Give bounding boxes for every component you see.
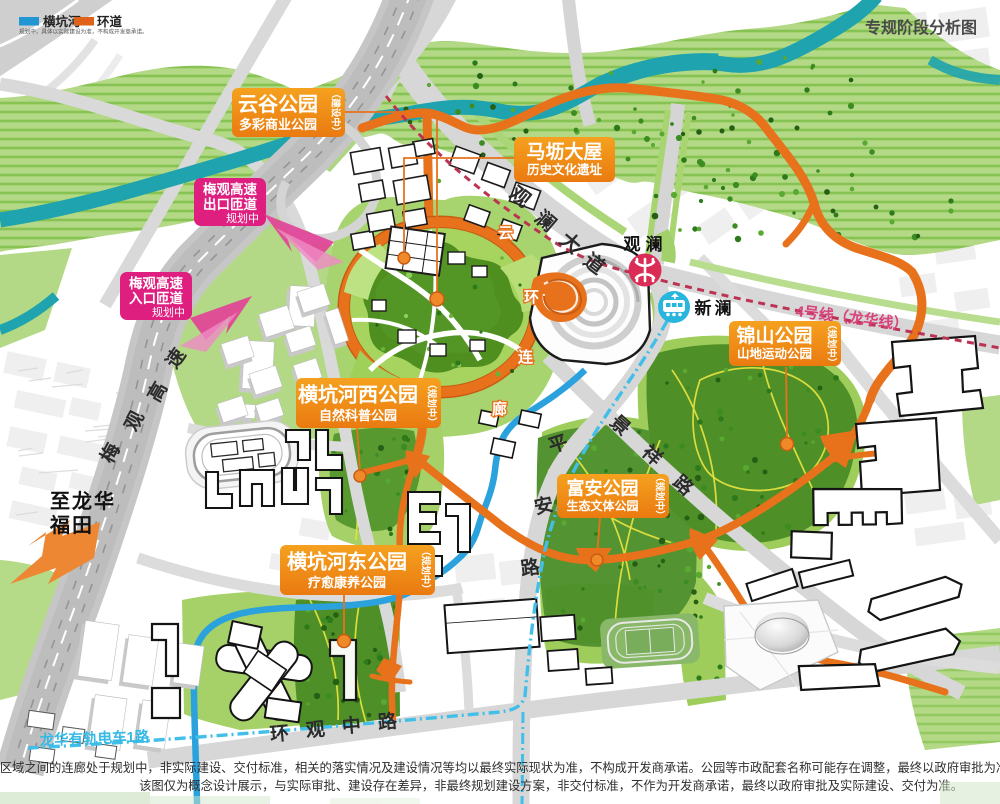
svg-text:龙: 龙 [72,489,92,513]
svg-text:环: 环 [269,723,290,746]
svg-text:专规阶段分析图: 专规阶段分析图 [865,18,977,37]
svg-text:入口匝道: 入口匝道 [129,290,183,306]
svg-text:横坑河东公园: 横坑河东公园 [287,550,407,574]
svg-text:自然科普公园: 自然科普公园 [319,408,397,423]
svg-text:山地运动公园: 山地运动公园 [737,346,812,361]
svg-text:规划中: 规划中 [152,305,185,319]
svg-text:路: 路 [377,709,399,734]
svg-text:富安公园: 富安公园 [567,478,639,499]
svg-text:环道: 环道 [97,14,123,29]
svg-text:横坑河西公园: 横坑河西公园 [298,383,418,407]
svg-text:各区域之间的连廊处于规划中，非实际建设、交付标准，相关的落实: 各区域之间的连廊处于规划中，非实际建设、交付标准，相关的落实情况及建设情况等均以… [0,760,1000,775]
svg-text:观: 观 [623,235,641,254]
svg-text:（建设中）: （建设中） [330,89,342,137]
svg-text:（规划中）: （规划中） [826,320,838,368]
svg-text:云谷公园: 云谷公园 [238,93,318,116]
svg-text:梅观高速: 梅观高速 [203,181,257,197]
svg-text:环: 环 [524,289,539,306]
svg-text:观: 观 [305,718,326,742]
svg-text:马坜大屋: 马坜大屋 [526,140,602,163]
svg-text:规划中: 规划中 [226,211,259,225]
svg-text:至: 至 [50,491,70,513]
svg-text:田: 田 [72,515,92,537]
svg-text:规划中，具体以实际建设为准，不构成开发商承诺。: 规划中，具体以实际建设为准，不构成开发商承诺。 [19,28,148,36]
svg-text:澜: 澜 [646,234,663,254]
svg-text:历史文化遗址: 历史文化遗址 [527,162,603,177]
svg-text:廊: 廊 [492,400,507,418]
svg-text:出口匝道: 出口匝道 [203,196,257,212]
svg-text:（规划中）: （规划中） [420,546,432,594]
svg-text:梅观高速: 梅观高速 [129,275,183,291]
svg-text:中: 中 [341,713,362,738]
svg-text:疗愈康养公园: 疗愈康养公园 [308,575,386,590]
svg-text:该图仅为概念设计展示，与实际审批、建设存在差异，非最终规划建: 该图仅为概念设计展示，与实际审批、建设存在差异，非最终规划建设方案，非交付标准，… [139,778,963,793]
svg-text:澜: 澜 [715,298,732,318]
svg-text:连: 连 [518,348,534,366]
svg-text:新: 新 [695,298,712,318]
svg-text:云: 云 [498,225,513,242]
svg-text:（规划中）: （规划中） [654,472,666,520]
svg-text:生态文体公园: 生态文体公园 [566,498,638,513]
svg-text:多彩商业公园: 多彩商业公园 [239,117,317,132]
svg-text:（规划中）: （规划中） [426,379,438,427]
svg-text:锦山公园: 锦山公园 [736,324,812,347]
svg-text:华: 华 [94,489,114,513]
svg-text:福: 福 [49,514,70,537]
